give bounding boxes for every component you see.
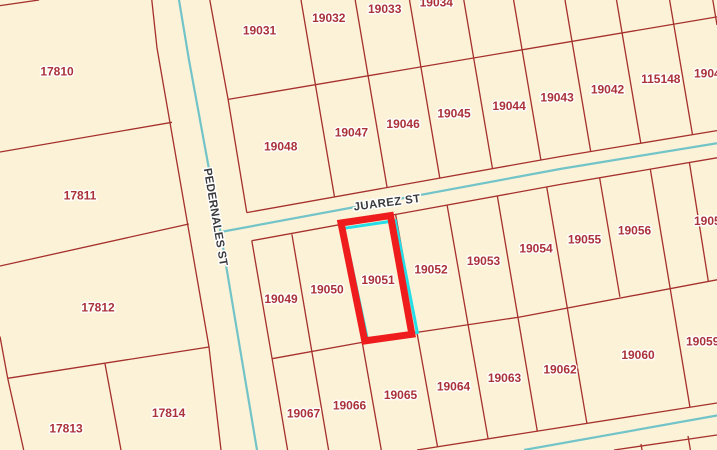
svg-text:17810: 17810 — [40, 64, 74, 78]
svg-text:17812: 17812 — [81, 300, 115, 314]
svg-text:17814: 17814 — [152, 406, 186, 420]
svg-text:19053: 19053 — [467, 254, 501, 268]
svg-text:19054: 19054 — [519, 241, 553, 255]
svg-text:19043: 19043 — [540, 91, 574, 105]
svg-text:19057: 19057 — [694, 214, 717, 228]
svg-text:115148: 115148 — [641, 72, 681, 86]
svg-text:19050: 19050 — [310, 282, 344, 296]
svg-text:19042: 19042 — [591, 83, 625, 97]
svg-text:19049: 19049 — [264, 292, 298, 306]
svg-text:19063: 19063 — [488, 371, 522, 385]
svg-text:19044: 19044 — [492, 99, 526, 113]
svg-text:17813: 17813 — [49, 421, 83, 435]
svg-text:19034: 19034 — [420, 0, 454, 9]
svg-text:19062: 19062 — [543, 362, 577, 376]
svg-text:19060: 19060 — [621, 348, 655, 362]
svg-text:19059: 19059 — [686, 334, 717, 348]
svg-text:19067: 19067 — [287, 406, 321, 420]
svg-text:19056: 19056 — [618, 223, 652, 237]
svg-text:19046: 19046 — [386, 117, 420, 131]
svg-text:19031: 19031 — [243, 24, 277, 38]
svg-text:19051: 19051 — [361, 273, 395, 287]
svg-text:19052: 19052 — [414, 262, 448, 276]
svg-text:19048: 19048 — [264, 140, 298, 154]
svg-text:19041: 19041 — [694, 66, 717, 80]
svg-text:19065: 19065 — [384, 388, 418, 402]
svg-text:19045: 19045 — [437, 106, 471, 120]
svg-text:19047: 19047 — [335, 126, 369, 140]
svg-text:19032: 19032 — [312, 11, 346, 25]
svg-text:19064: 19064 — [437, 380, 471, 394]
svg-text:19033: 19033 — [368, 2, 402, 16]
svg-text:17811: 17811 — [64, 188, 97, 202]
svg-text:19066: 19066 — [333, 398, 367, 412]
svg-text:19055: 19055 — [568, 232, 602, 246]
